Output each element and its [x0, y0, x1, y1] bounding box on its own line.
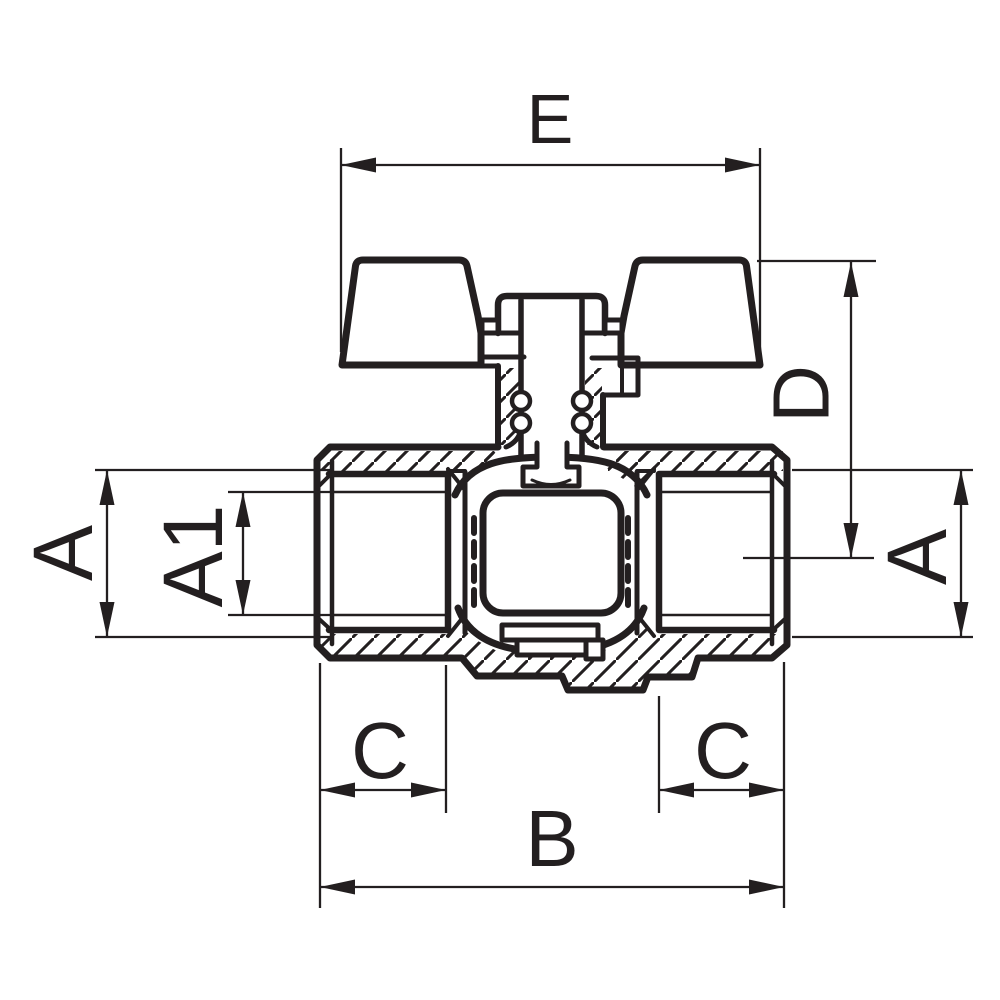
seat-retainer-key [586, 640, 603, 659]
arrowhead [341, 158, 376, 173]
right-port-thread-lines [659, 492, 772, 615]
handle-ear-left [482, 320, 498, 333]
hatch-bottom-right-band [659, 634, 783, 656]
dim-label-a-right: A [870, 529, 964, 585]
handle-ear-right [605, 320, 622, 333]
dimension-c-right: C [659, 662, 784, 908]
butterfly-handle [342, 260, 760, 365]
dim-label-b: B [525, 794, 578, 883]
dimension-a-right: A [792, 470, 973, 637]
dimension-d: D [743, 261, 876, 558]
arrowhead [659, 783, 694, 798]
handle-left-wing [342, 260, 481, 365]
ball-bore-opening [483, 493, 621, 613]
arrowhead [725, 158, 760, 173]
left-port-bore [329, 474, 448, 630]
dim-label-c-left: C [351, 706, 409, 795]
dim-label-e: E [527, 80, 574, 158]
left-port-thread-lines [331, 492, 448, 615]
arrowhead [749, 880, 784, 895]
seat-retainer-plate-lower [517, 640, 593, 655]
drawing-page: E D A A1 A C [0, 0, 1000, 1000]
dim-label-a1: A1 [146, 505, 240, 608]
o-ring [512, 392, 530, 410]
arrowhead [844, 523, 859, 558]
arrowhead [320, 783, 355, 798]
dimension-b: B [320, 794, 784, 895]
arrowhead [844, 262, 859, 297]
dim-label-c-right: C [694, 706, 752, 795]
arrowhead [411, 783, 446, 798]
handle-right-wing [621, 260, 760, 365]
o-ring [573, 414, 591, 432]
dim-label-a-left: A [16, 525, 110, 581]
bonnet-ledge-left [480, 357, 524, 366]
dim-label-d: D [757, 365, 846, 423]
hatch-bottom-left-band [321, 634, 448, 656]
dimension-c-left: C [320, 663, 446, 908]
right-port-bore [659, 474, 774, 630]
technical-drawing: E D A A1 A C [0, 0, 1000, 1000]
arrowhead [100, 602, 115, 637]
o-ring [573, 392, 591, 410]
handle-hub [498, 296, 605, 333]
o-ring [512, 414, 530, 432]
dimension-a1: A1 [146, 492, 332, 615]
arrowhead [954, 470, 969, 505]
arrowhead [749, 783, 784, 798]
arrowhead [954, 602, 969, 637]
arrowhead [320, 880, 355, 895]
arrowhead [100, 470, 115, 505]
